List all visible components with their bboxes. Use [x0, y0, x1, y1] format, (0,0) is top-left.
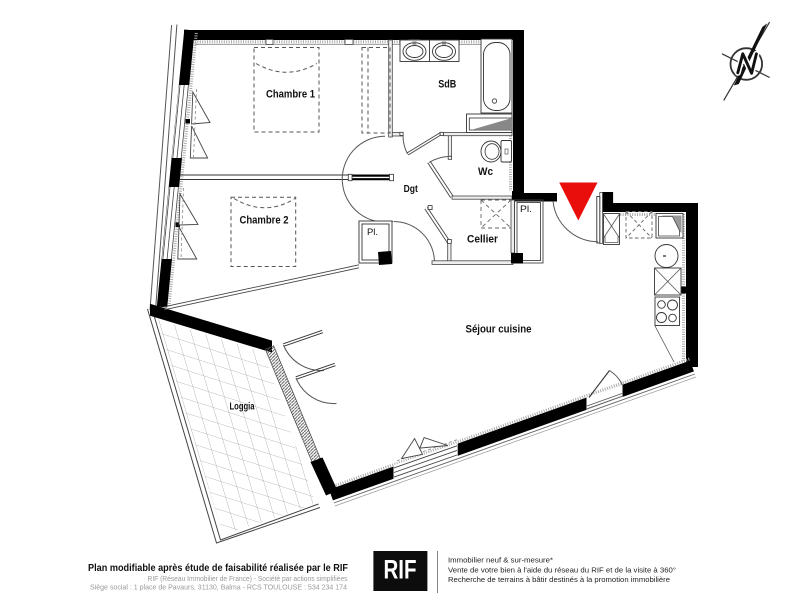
- svg-text:Recherche de terrains à bâtir: Recherche de terrains à bâtir destinés à…: [448, 575, 670, 584]
- svg-text:Pl.: Pl.: [367, 227, 378, 237]
- svg-text:RIF (Réseau Immobilier de Fran: RIF (Réseau Immobilier de France) - Soci…: [148, 576, 348, 583]
- svg-text:RIF: RIF: [384, 555, 417, 585]
- svg-text:Pl.: Pl.: [520, 204, 532, 214]
- svg-text:SdB: SdB: [438, 79, 456, 91]
- svg-text:Cellier: Cellier: [467, 234, 499, 246]
- svg-text:Plan modifiable après étude de: Plan modifiable après étude de faisabili…: [88, 563, 348, 574]
- svg-text:Wc: Wc: [478, 166, 493, 178]
- svg-text:Dgt: Dgt: [404, 184, 419, 195]
- svg-text:Immobilier neuf & sur-mesure*: Immobilier neuf & sur-mesure*: [448, 556, 553, 565]
- svg-text:Chambre 2: Chambre 2: [240, 215, 289, 227]
- svg-text:Loggia: Loggia: [230, 402, 255, 413]
- svg-text:Chambre 1: Chambre 1: [266, 89, 315, 101]
- svg-text:Séjour cuisine: Séjour cuisine: [466, 324, 532, 336]
- svg-text:Siège social : 1 place de Pava: Siège social : 1 place de Pavaurs, 31130…: [90, 585, 347, 592]
- svg-text:Vente de votre bien à l'aide d: Vente de votre bien à l'aide du réseau d…: [448, 566, 676, 575]
